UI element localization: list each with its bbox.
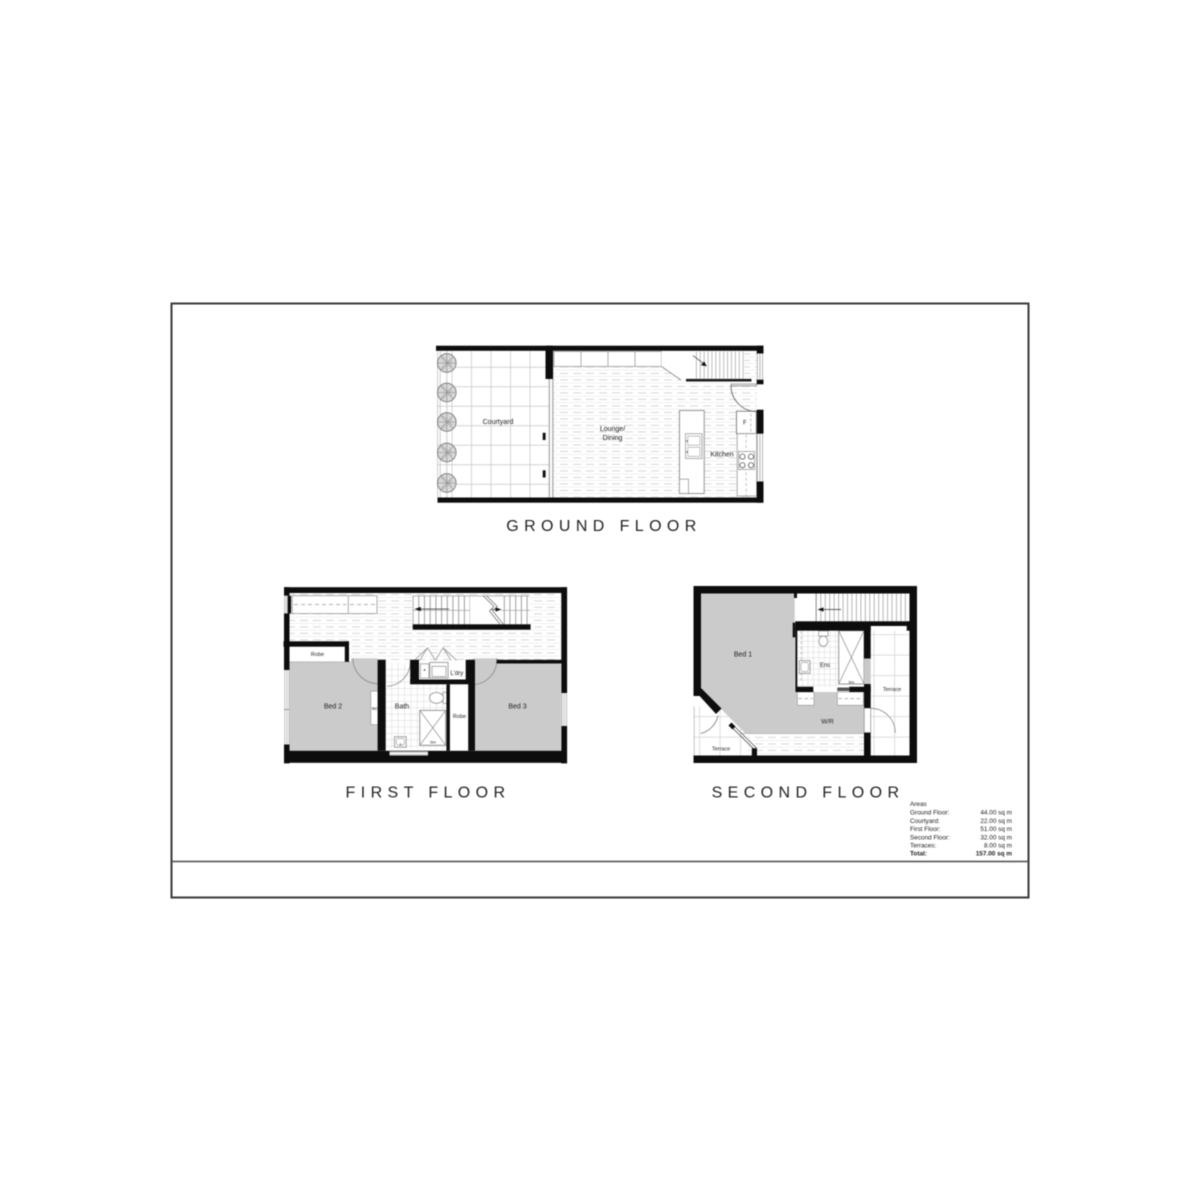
svg-text:44.00 sq m: 44.00 sq m <box>980 810 1012 817</box>
svg-text:Courtyard: Courtyard <box>483 419 514 426</box>
svg-text:22.00 sq m: 22.00 sq m <box>980 818 1012 825</box>
svg-text:Terrace: Terrace <box>712 747 730 753</box>
svg-text:W/R: W/R <box>821 719 834 726</box>
svg-text:Total:: Total: <box>910 851 927 858</box>
svg-text:157.00 sq m: 157.00 sq m <box>976 851 1013 858</box>
svg-text:Shr: Shr <box>430 740 437 745</box>
svg-text:51.00 sq m: 51.00 sq m <box>980 826 1012 833</box>
svg-text:Bed 1: Bed 1 <box>734 652 752 659</box>
svg-text:Courtyard:: Courtyard: <box>910 818 940 825</box>
svg-text:GROUND FLOOR: GROUND FLOOR <box>506 518 701 535</box>
svg-text:Shr: Shr <box>848 680 855 685</box>
svg-text:Robe: Robe <box>453 714 466 720</box>
svg-text:Terraces:: Terraces: <box>910 843 937 850</box>
svg-text:Kitchen: Kitchen <box>710 452 733 459</box>
svg-text:32.00 sq m: 32.00 sq m <box>980 835 1012 842</box>
svg-text:First Floor:: First Floor: <box>910 826 941 833</box>
svg-text:Second Floor:: Second Floor: <box>910 835 950 842</box>
svg-text:Ens: Ens <box>820 663 830 669</box>
svg-text:Bath: Bath <box>395 704 410 711</box>
svg-text:Robe: Robe <box>311 652 324 658</box>
svg-text:F: F <box>743 421 747 427</box>
svg-text:Dining: Dining <box>603 435 623 442</box>
svg-text:Bed 2: Bed 2 <box>324 704 342 711</box>
svg-text:Lounge/: Lounge/ <box>600 426 625 433</box>
svg-text:SECOND FLOOR: SECOND FLOOR <box>712 785 905 802</box>
svg-text:L'dry: L'dry <box>450 671 463 677</box>
svg-text:Terrace: Terrace <box>883 687 901 693</box>
svg-text:8.00 sq m: 8.00 sq m <box>984 843 1012 850</box>
svg-text:Areas: Areas <box>910 801 927 808</box>
svg-text:AC: AC <box>372 706 378 711</box>
svg-text:Ground Floor:: Ground Floor: <box>910 810 950 817</box>
svg-text:Bed 3: Bed 3 <box>508 704 526 711</box>
svg-text:FIRST FLOOR: FIRST FLOOR <box>346 785 511 802</box>
